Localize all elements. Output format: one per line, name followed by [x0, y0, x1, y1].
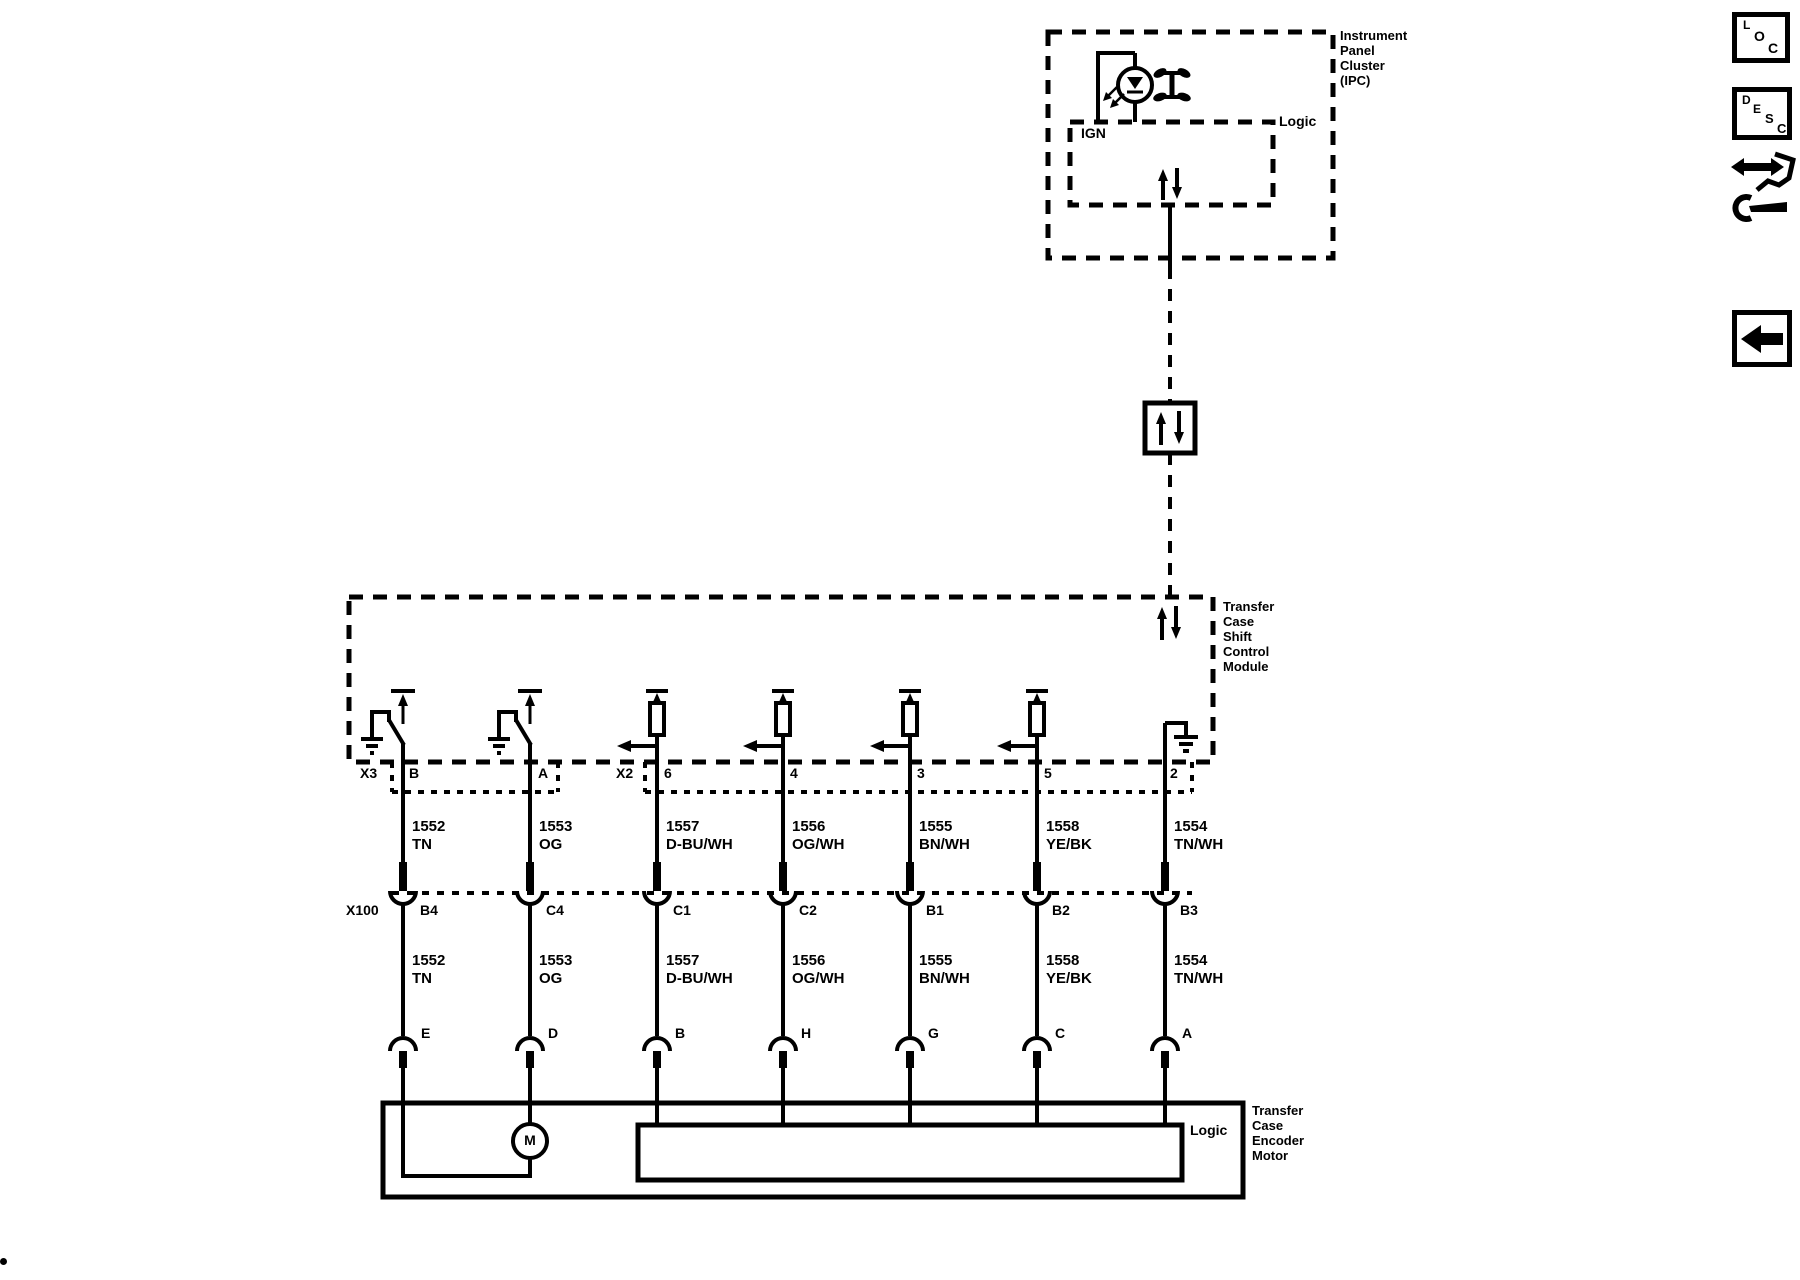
- serial-data-link: [1145, 205, 1195, 597]
- back-button[interactable]: [1732, 310, 1792, 367]
- encoder-name-line1: Transfer: [1252, 1103, 1303, 1118]
- motor-pin-e: E: [421, 1026, 430, 1041]
- page-artifact-dot: [0, 1258, 7, 1265]
- loc-letter-c: C: [1768, 40, 1778, 56]
- loc-button[interactable]: L O C: [1732, 12, 1790, 63]
- wire-label-lower-1: 1552TN: [412, 952, 445, 988]
- wire-label-upper-6: 1558YE/BK: [1046, 818, 1092, 854]
- back-arrow-icon: [1739, 319, 1785, 359]
- wire-label-lower-2: 1553OG: [539, 952, 572, 988]
- x100-pin-b4: B4: [420, 903, 438, 918]
- wire-label-upper-1: 1552TN: [412, 818, 445, 854]
- ign-label: IGN: [1081, 126, 1106, 141]
- wire-label-upper-7: 1554TN/WH: [1174, 818, 1223, 854]
- encoder-name-line4: Motor: [1252, 1148, 1288, 1163]
- motor-pin-b: B: [675, 1026, 685, 1041]
- wire-label-lower-7: 1554TN/WH: [1174, 952, 1223, 988]
- ipc-name-line3: Cluster: [1340, 58, 1385, 73]
- indicator-lamp-icon: [1098, 53, 1152, 122]
- tccm-name-line2: Case: [1223, 614, 1254, 629]
- connector-x3-label: X3: [360, 766, 377, 781]
- ipc-name-line4: (IPC): [1340, 73, 1370, 88]
- wire-label-lower-5: 1555BN/WH: [919, 952, 970, 988]
- ipc-name-line1: Instrument: [1340, 28, 1407, 43]
- x3-pin-a: A: [538, 766, 548, 781]
- wire-label-lower-6: 1558YE/BK: [1046, 952, 1092, 988]
- encoder-name-line2: Case: [1252, 1118, 1283, 1133]
- encoder-motor-box-outline: [383, 1103, 1243, 1197]
- x2-pin-6: 6: [664, 766, 672, 781]
- x2-pin-3: 3: [917, 766, 925, 781]
- desc-letter-d: D: [1742, 93, 1751, 107]
- tccm-name-line5: Module: [1223, 659, 1269, 674]
- motor-pin-d: D: [548, 1026, 558, 1041]
- loc-letter-l: L: [1743, 18, 1750, 32]
- x100-pin-b2: B2: [1052, 903, 1070, 918]
- ipc-logic-label: Logic: [1279, 114, 1316, 129]
- four-wheel-drive-icon: [1152, 66, 1192, 103]
- ground-symbol-pin-2: [1165, 723, 1198, 891]
- motor-pin-a: A: [1182, 1026, 1192, 1041]
- tccm-name-line4: Control: [1223, 644, 1269, 659]
- ipc-name-line2: Panel: [1340, 43, 1375, 58]
- x100-pin-b3: B3: [1180, 903, 1198, 918]
- tccm-name-line3: Shift: [1223, 629, 1252, 644]
- motor-pin-h: H: [801, 1026, 811, 1041]
- loc-letter-o: O: [1754, 28, 1765, 44]
- wire-label-upper-3: 1557D-BU/WH: [666, 818, 733, 854]
- wire-label-upper-2: 1553OG: [539, 818, 572, 854]
- connector-x100-label: X100: [346, 903, 379, 918]
- wire-label-upper-4: 1556OG/WH: [792, 818, 845, 854]
- ipc-box-outline: [1048, 32, 1333, 258]
- motor-m-label: M: [520, 1133, 540, 1148]
- tccm-name-line1: Transfer: [1223, 599, 1274, 614]
- wire-label-lower-4: 1556OG/WH: [792, 952, 845, 988]
- desc-letter-c: C: [1777, 121, 1786, 136]
- shop-navigation-wrench-icon[interactable]: [1729, 150, 1797, 224]
- x100-pin-c1: C1: [673, 903, 691, 918]
- encoder-name-line3: Encoder: [1252, 1133, 1304, 1148]
- encoder-pin-connectors: [390, 1038, 1178, 1103]
- x2-pin-2: 2: [1170, 766, 1178, 781]
- wire-label-upper-5: 1555BN/WH: [919, 818, 970, 854]
- tccm-serial-data-arrows-icon: [1157, 606, 1181, 640]
- wiring-diagram-canvas: [0, 0, 1800, 1280]
- connector-x2-label: X2: [616, 766, 633, 781]
- connector-x100-row: [390, 891, 1192, 904]
- x100-pin-c4: C4: [546, 903, 564, 918]
- x100-pin-c2: C2: [799, 903, 817, 918]
- ipc-serial-data-arrows-icon: [1158, 168, 1182, 200]
- motor-pin-c: C: [1055, 1026, 1065, 1041]
- encoder-motor-internals: [401, 1103, 1165, 1176]
- wiring-diagram-page: Instrument Panel Cluster (IPC) Logic IGN…: [0, 0, 1800, 1280]
- desc-letter-e: E: [1753, 102, 1761, 116]
- desc-button[interactable]: D E S C: [1732, 87, 1792, 140]
- x2-pin-4: 4: [790, 766, 798, 781]
- wire-label-lower-3: 1557D-BU/WH: [666, 952, 733, 988]
- motor-pin-g: G: [928, 1026, 939, 1041]
- encoder-logic-label: Logic: [1190, 1123, 1227, 1138]
- x3-pin-b: B: [409, 766, 419, 781]
- desc-letter-s: S: [1765, 111, 1774, 126]
- x2-pin-5: 5: [1044, 766, 1052, 781]
- x100-pin-b1: B1: [926, 903, 944, 918]
